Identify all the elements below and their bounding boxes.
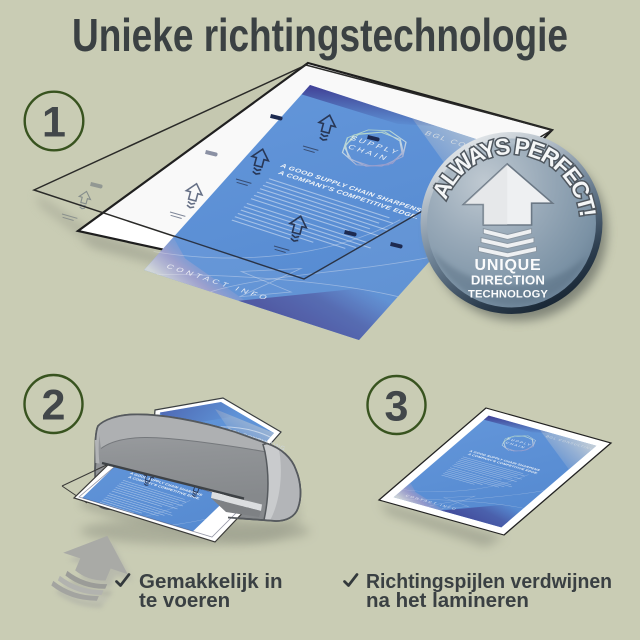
- svg-text:3: 3: [385, 383, 409, 431]
- svg-text:Unieke richtingstechnologie: Unieke richtingstechnologie: [72, 9, 568, 61]
- svg-text:te voeren: te voeren: [139, 589, 230, 612]
- svg-text:DIRECTION: DIRECTION: [471, 273, 545, 288]
- svg-text:2: 2: [42, 382, 66, 430]
- svg-text:TECHNOLOGY: TECHNOLOGY: [468, 289, 548, 301]
- svg-text:1: 1: [42, 99, 66, 147]
- svg-text:na het lamineren: na het lamineren: [366, 589, 529, 612]
- svg-text:UNIQUE: UNIQUE: [474, 257, 541, 274]
